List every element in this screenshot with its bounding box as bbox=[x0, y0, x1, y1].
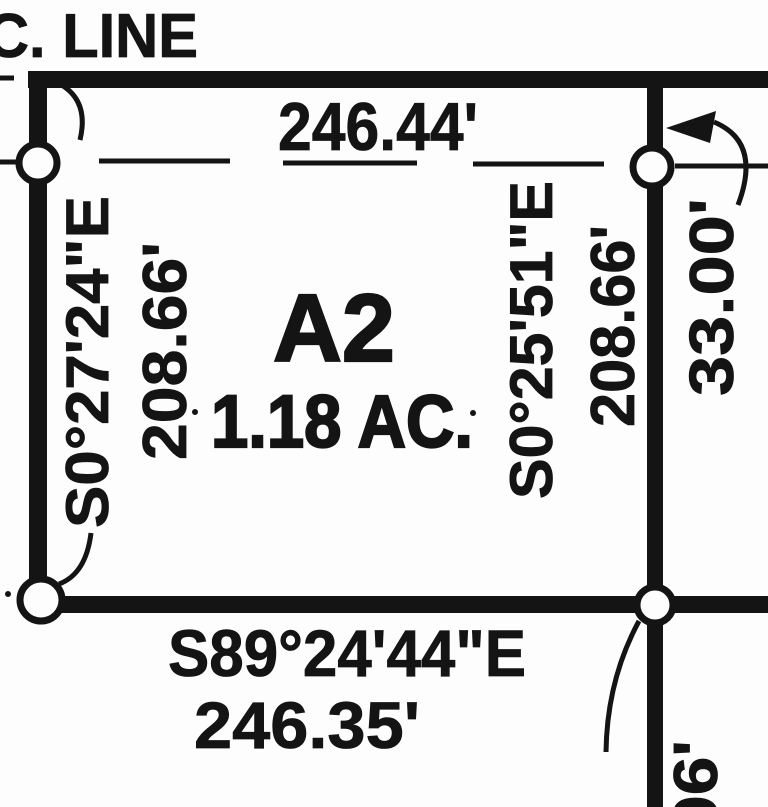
southeast-corner-curve bbox=[606, 621, 639, 752]
monument-southeast-icon bbox=[637, 587, 673, 623]
west-boundary-bearing-label: S0°27'24"E bbox=[54, 196, 121, 528]
west-boundary-distance-label: 208.66' bbox=[131, 242, 200, 460]
right-of-way-width-label: 33.00' bbox=[678, 198, 747, 396]
monument-northwest-icon bbox=[19, 144, 57, 182]
south-boundary-distance-label: 246.35' bbox=[194, 688, 420, 762]
southwest-corner-curve bbox=[59, 533, 91, 584]
monument-northeast-icon bbox=[633, 148, 671, 186]
plat-drawing: C. LINE 246.44' S0°27'24"E 208.66' A2 1.… bbox=[0, 0, 768, 807]
scan-speck bbox=[5, 591, 11, 597]
south-boundary-bearing-label: S89°24'44"E bbox=[168, 616, 526, 690]
monument-southwest-icon bbox=[20, 579, 62, 621]
east-boundary-distance-label: 208.66' bbox=[579, 225, 648, 427]
east-boundary-bearing-label: S0°25'51"E bbox=[498, 181, 565, 499]
section-line-label: C. LINE bbox=[0, 2, 198, 71]
parcel-area-label: 1.18 AC. bbox=[211, 380, 473, 463]
parcel-id-label: A2 bbox=[273, 275, 395, 382]
clipped-dimension-label: 06' bbox=[662, 740, 731, 807]
leader-arrowhead-icon bbox=[666, 111, 716, 143]
survey-plat-scan: C. LINE 246.44' S0°27'24"E 208.66' A2 1.… bbox=[0, 0, 768, 807]
north-boundary-distance-label: 246.44' bbox=[278, 89, 478, 165]
northwest-corner-curve bbox=[56, 82, 82, 140]
